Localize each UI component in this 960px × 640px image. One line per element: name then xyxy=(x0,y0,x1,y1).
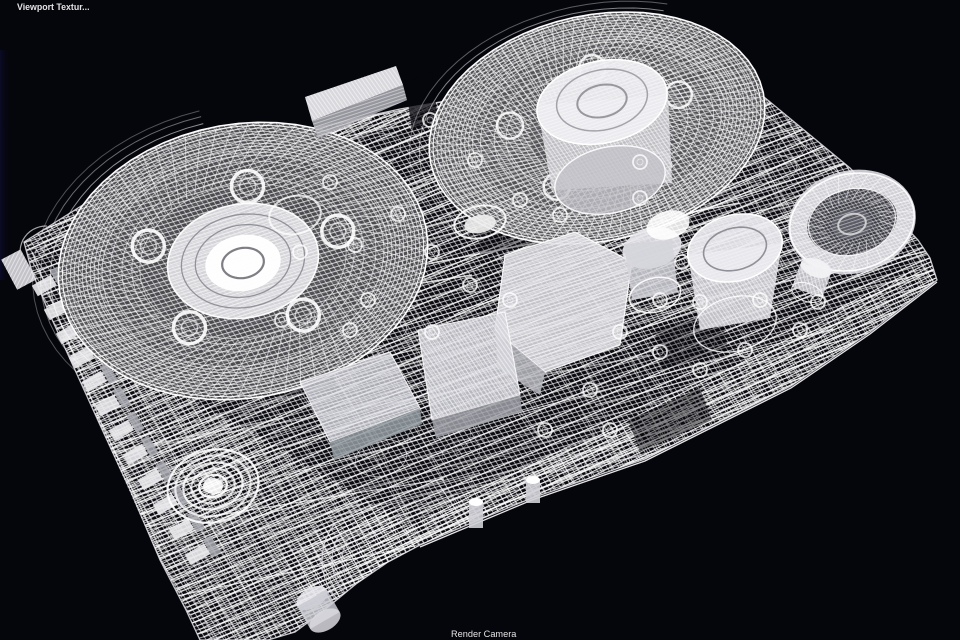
svg-text:Viewport Textur...: Viewport Textur... xyxy=(17,2,90,12)
svg-text:Render Camera: Render Camera xyxy=(451,629,517,639)
